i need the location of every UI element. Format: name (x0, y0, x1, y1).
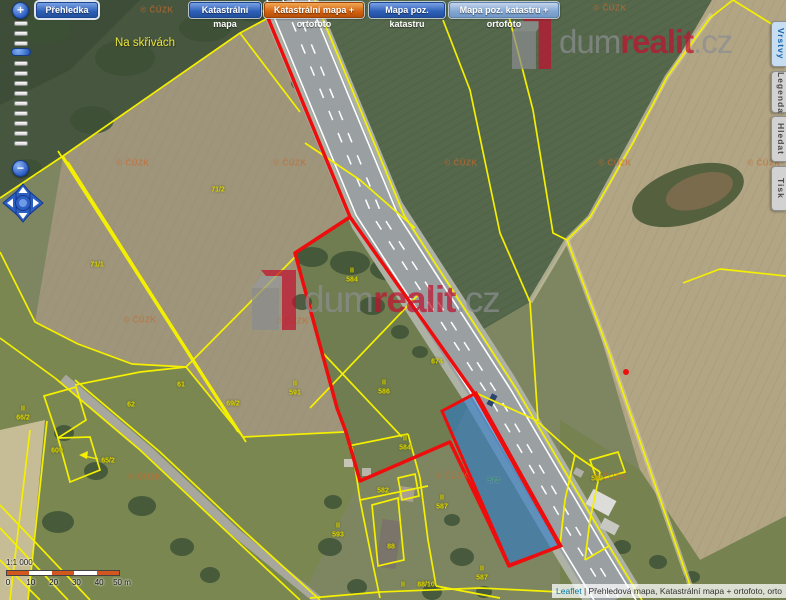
scale-tick-label: 30 (72, 578, 81, 587)
scale-bar-ticks: 01020304050 m (6, 578, 136, 588)
tree (42, 511, 74, 533)
tree (318, 538, 342, 556)
leaflet-link[interactable]: Leaflet (556, 586, 582, 596)
zoom-slider-tick[interactable] (14, 21, 28, 26)
zoom-slider-tick[interactable] (14, 111, 28, 116)
scale-bar-segment (29, 571, 51, 575)
scale-tick-label: 20 (49, 578, 58, 587)
tree (324, 495, 342, 509)
zoom-slider-track[interactable] (14, 21, 28, 151)
zoom-slider-tick[interactable] (14, 121, 28, 126)
zoom-in-button[interactable]: + (12, 2, 29, 19)
zoom-slider-tick[interactable] (14, 71, 28, 76)
tree (330, 251, 370, 275)
scale-bar-segment (74, 571, 96, 575)
zoom-slider-tick[interactable] (14, 101, 28, 106)
map-viewport[interactable]: Na skřivách 71/271/1616269/260965/2II66/… (0, 0, 786, 600)
zoom-out-button[interactable]: − (12, 160, 29, 177)
map-canvas[interactable] (0, 0, 786, 600)
side-tab-tisk[interactable]: Tisk (771, 166, 786, 211)
basemap-button-5[interactable]: Mapa poz. katastru + ortofoto (449, 2, 559, 18)
side-tab-hledat[interactable]: Hledat (771, 116, 786, 162)
building (344, 459, 353, 467)
tree (391, 325, 409, 339)
zoom-slider-tick[interactable] (14, 91, 28, 96)
basemap-button-4[interactable]: Mapa poz. katastru (369, 2, 445, 18)
zoom-slider-tick[interactable] (14, 81, 28, 86)
pan-center-dot (19, 199, 27, 207)
zoom-slider-tick[interactable] (14, 131, 28, 136)
tree (444, 514, 460, 526)
red-point-marker (623, 369, 629, 375)
building (362, 468, 371, 476)
basemap-button-3[interactable]: Katastrální mapa + ortofoto (264, 2, 364, 18)
tree (170, 538, 194, 556)
basemap-button-2[interactable]: Katastrální mapa (189, 2, 261, 18)
scale-tick-label: 0 (6, 578, 10, 587)
parcel-boundary-line (420, 478, 436, 586)
scale-bar-segment (52, 571, 74, 575)
zoom-slider-handle[interactable] (11, 48, 31, 56)
tree (359, 297, 385, 315)
zoom-slider-tick[interactable] (14, 41, 28, 46)
scale-tick-label: 10 (26, 578, 35, 587)
tree (649, 555, 667, 569)
scale-tick-label: 50 m (113, 578, 131, 587)
tree (200, 567, 220, 583)
scale-bar-segment (97, 571, 119, 575)
zoom-slider-tick[interactable] (14, 61, 28, 66)
tree (128, 496, 156, 516)
basemap-button-1[interactable]: Přehledka (36, 2, 98, 18)
tree (95, 40, 155, 76)
scale-ratio-label: 1:1 000 (6, 558, 136, 567)
pan-control (0, 180, 46, 226)
side-tab-legenda[interactable]: Legenda (771, 71, 786, 113)
side-tab-vrstvy[interactable]: Vrstvy (771, 21, 786, 67)
attribution-text: | Přehledová mapa, Katastrální mapa + or… (582, 586, 782, 596)
tree (70, 106, 114, 134)
scale-tick-label: 40 (95, 578, 104, 587)
map-attribution: Leaflet | Přehledová mapa, Katastrální m… (552, 584, 786, 598)
scale-bar-segments (6, 570, 120, 576)
zoom-slider-tick[interactable] (14, 141, 28, 146)
tree (412, 346, 428, 358)
tree (450, 548, 474, 566)
zoom-slider-tick[interactable] (14, 31, 28, 36)
scale-bar-segment (7, 571, 29, 575)
scale-bar: 1:1 000 01020304050 m (6, 558, 136, 588)
